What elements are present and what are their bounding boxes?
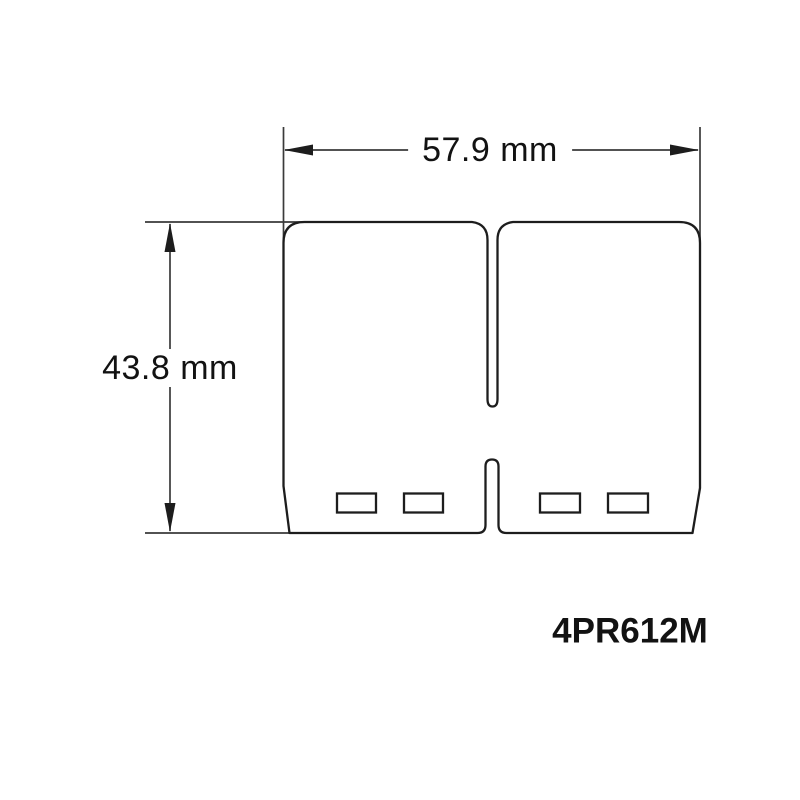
dimension-arrow-down-icon: [165, 503, 176, 532]
dimension-arrow-left-icon: [284, 145, 313, 156]
dimension-arrow-up-icon: [165, 223, 176, 252]
height-dimension-label: 43.8 mm: [88, 349, 252, 387]
reed-petal-outline: [284, 222, 701, 533]
technical-drawing-canvas: 57.9 mm 43.8 mm 4PR612M: [0, 0, 800, 800]
part-number-label: 4PR612M: [552, 614, 708, 649]
width-dimension-label: 57.9 mm: [408, 131, 572, 169]
reed-petal-drawing-svg: [0, 0, 800, 800]
dimension-arrow-right-icon: [670, 145, 699, 156]
